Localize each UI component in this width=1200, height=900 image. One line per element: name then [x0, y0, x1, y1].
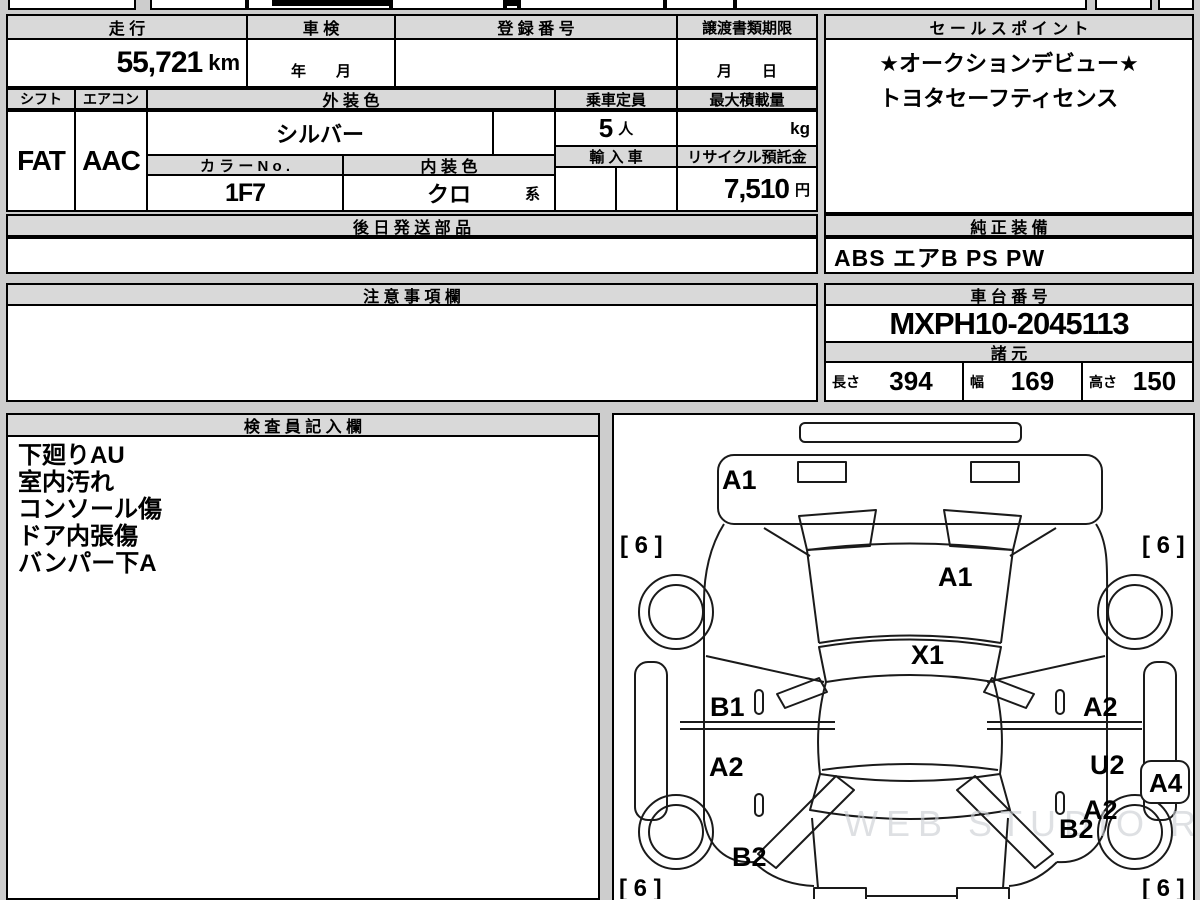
- auction-sheet: 走 行 車 検 登 録 番 号 譲渡書類期限 55,721 km 年 月 月 日…: [0, 0, 1200, 900]
- caution-cell: [6, 304, 818, 402]
- cutoff-text-fragment: [506, 0, 517, 6]
- watermark-text: WEB STUDIO RIO: [844, 803, 1193, 844]
- sales-point-box: ★オークションデビュー★ トヨタセーフティセンス: [824, 38, 1194, 214]
- registration-cell: [394, 38, 678, 88]
- spec-width-cell: 幅 169: [962, 361, 1083, 402]
- sales-point-header: セ ー ル ス ポ イ ン ト: [824, 14, 1194, 40]
- later-parts-header: 後 日 発 送 部 品: [6, 214, 818, 237]
- shaken-placeholder: 年 月: [291, 60, 351, 81]
- chassis-number-cell: MXPH10-2045113: [824, 304, 1194, 343]
- shift-value: FAT: [17, 145, 65, 177]
- interior-color-value: クロ: [427, 177, 471, 209]
- import-header: 輸 入 車: [554, 145, 678, 168]
- interior-color-cell: クロ 系: [342, 174, 556, 212]
- recycle-deposit-header: リサイクル預託金: [676, 145, 818, 168]
- shaken-header: 車 検: [246, 14, 396, 40]
- aircon-cell: AAC: [74, 110, 148, 212]
- import-cell-right: [615, 166, 678, 212]
- partial-row-cell: [8, 0, 136, 10]
- partial-row-cell: [1158, 0, 1194, 10]
- inspector-line: コンソール傷: [18, 496, 162, 523]
- capacity-value: 5: [599, 113, 612, 144]
- capacity-header: 乗車定員: [554, 88, 678, 110]
- tire-depth-front-right: [ 6 ]: [1142, 532, 1185, 559]
- max-load-cell: kg: [676, 110, 818, 147]
- color-no-header: カ ラ ー N o .: [146, 154, 344, 176]
- interior-color-suffix: 系: [525, 183, 540, 204]
- transfer-placeholder: 月 日: [717, 60, 777, 81]
- transfer-deadline-cell: 月 日: [676, 38, 818, 88]
- spec-length-label: 長さ: [826, 372, 860, 392]
- shift-header: シフト: [6, 88, 76, 110]
- exterior-color-cell: シルバー: [146, 110, 494, 156]
- spec-height-value: 150: [1117, 366, 1192, 397]
- damage-label-right-rear-door: U2: [1090, 750, 1125, 780]
- import-cell-left: [554, 166, 617, 212]
- capacity-cell: 5 人: [554, 110, 678, 147]
- max-load-header: 最大積載量: [676, 88, 818, 110]
- chassis-number-header: 車 台 番 号: [824, 283, 1194, 306]
- transfer-deadline-header: 譲渡書類期限: [676, 14, 818, 40]
- spec-width-value: 169: [984, 366, 1081, 397]
- chassis-number-value: MXPH10-2045113: [889, 306, 1128, 342]
- registration-header: 登 録 番 号: [394, 14, 678, 40]
- damage-label-right-front-door: A2: [1083, 692, 1118, 722]
- max-load-unit: kg: [790, 119, 810, 139]
- caution-header: 注 意 事 項 欄: [6, 283, 818, 306]
- damage-label-left-rear-door: A2: [709, 752, 744, 782]
- genuine-equipment-cell: ABS エアB PS PW: [824, 237, 1194, 274]
- mileage-cell: 55,721 km: [6, 38, 248, 88]
- damage-label-right-corner: A4: [1149, 768, 1183, 798]
- spec-length-cell: 長さ 394: [824, 361, 964, 402]
- mileage-value: 55,721: [116, 46, 202, 80]
- color-no-cell: 1F7: [146, 174, 344, 212]
- capacity-unit: 人: [618, 118, 633, 139]
- exterior-color-header: 外 装 色: [146, 88, 556, 110]
- exterior-color-value: シルバー: [276, 117, 364, 149]
- damage-label-left-rear-quarter: B2: [732, 842, 767, 872]
- inspector-cell: 下廻りAU 室内汚れ コンソール傷 ドア内張傷 バンパー下A: [6, 435, 600, 900]
- inspector-line: バンパー下A: [18, 550, 162, 577]
- spec-height-cell: 高さ 150: [1081, 361, 1194, 402]
- tire-depth-rear-left: [ 6 ]: [619, 875, 662, 899]
- sales-point-line: トヨタセーフティセンス: [879, 81, 1138, 116]
- spec-width-label: 幅: [964, 372, 984, 392]
- tire-depth-front-left: [ 6 ]: [620, 532, 663, 559]
- car-top-view-diagram: WEB STUDIO RIO A1 A1 X1 B1 A2 B2 A2 U2 A…: [614, 416, 1193, 899]
- damage-diagram-box: WEB STUDIO RIO A1 A1 X1 B1 A2 B2 A2 U2 A…: [612, 413, 1195, 900]
- recycle-deposit-value: 7,510: [724, 173, 789, 205]
- interior-color-header: 内 装 色: [342, 154, 556, 176]
- exterior-color-extra-cell: [492, 110, 556, 156]
- partial-row-cell: [150, 0, 247, 10]
- spec-height-label: 高さ: [1083, 372, 1117, 392]
- sales-point-line: ★オークションデビュー★: [879, 46, 1138, 81]
- specs-header: 諸 元: [824, 341, 1194, 363]
- recycle-deposit-unit: 円: [795, 179, 810, 200]
- shift-cell: FAT: [6, 110, 76, 212]
- damage-label-front-bumper: A1: [722, 465, 757, 495]
- aircon-header: エアコン: [74, 88, 148, 110]
- inspector-header: 検 査 員 記 入 欄: [6, 413, 600, 437]
- tire-depth-rear-right: [ 6 ]: [1142, 875, 1185, 899]
- damage-label-right-rear-quarter: B2: [1059, 814, 1094, 844]
- inspector-line: ドア内張傷: [18, 523, 162, 550]
- inspector-line: 室内汚れ: [18, 469, 162, 496]
- shaken-cell: 年 月: [246, 38, 396, 88]
- partial-row-cell: [665, 0, 735, 10]
- partial-row-cell: [391, 0, 505, 10]
- partial-row-cell: [735, 0, 1087, 10]
- spec-length-value: 394: [860, 366, 962, 397]
- recycle-deposit-cell: 7,510 円: [676, 166, 818, 212]
- later-parts-cell: [6, 237, 818, 274]
- aircon-value: AAC: [82, 145, 140, 177]
- damage-label-left-front-door: B1: [710, 692, 745, 722]
- mileage-header: 走 行: [6, 14, 248, 40]
- genuine-equipment-value: ABS エアB PS PW: [834, 239, 1045, 273]
- damage-label-hood: A1: [938, 562, 973, 592]
- inspector-line: 下廻りAU: [18, 442, 162, 469]
- color-no-value: 1F7: [225, 179, 265, 208]
- mileage-unit: km: [208, 50, 240, 76]
- partial-row-cell: [1095, 0, 1152, 10]
- genuine-equipment-header: 純 正 装 備: [824, 214, 1194, 237]
- damage-label-windshield: X1: [911, 640, 944, 670]
- partial-row-cell: [519, 0, 665, 10]
- cutoff-text-fragment: [272, 0, 390, 6]
